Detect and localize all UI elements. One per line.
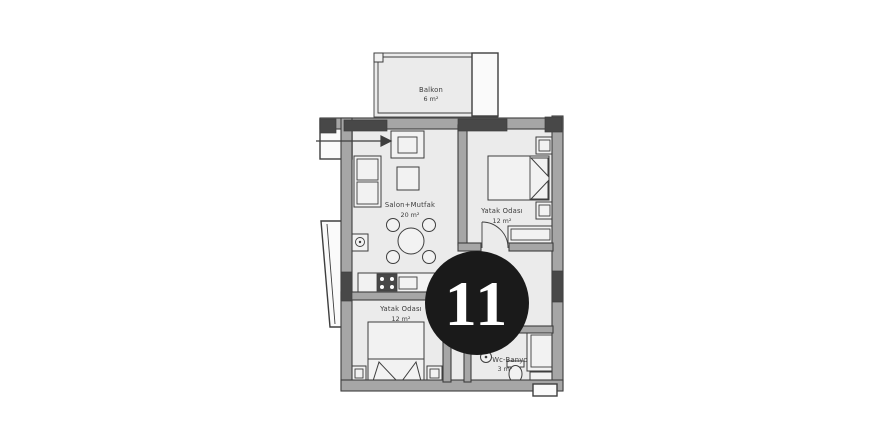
- sofa: [354, 156, 381, 207]
- wall-living-bedroom: [458, 125, 467, 245]
- wall-bottom: [341, 380, 563, 391]
- stove-burner: [390, 285, 394, 289]
- wall-left: [341, 118, 352, 390]
- bathroom-label: Wc-Banyo: [492, 356, 528, 364]
- unit-number: 11: [445, 268, 509, 339]
- nightstand: [427, 366, 442, 381]
- window-top-left: [344, 120, 387, 131]
- bathroom-area-label: 3 m²: [498, 365, 513, 373]
- bedroom-lower-label: Yatak Odası: [379, 305, 422, 313]
- window-top-right: [458, 119, 507, 131]
- balcony-open-section: [472, 53, 498, 116]
- stove: [377, 274, 397, 291]
- dining-table: [398, 228, 424, 254]
- stove-burner: [380, 277, 384, 281]
- dining-chair: [423, 251, 436, 264]
- balcony-label: Balkon: [419, 86, 443, 94]
- floor-plan-image: Balkon 6 m² Salon+Mutfak 20 m²: [0, 0, 890, 440]
- dining-chair: [423, 219, 436, 232]
- balcony: Balkon 6 m²: [374, 53, 498, 117]
- kitchen-sink-drain: [359, 241, 361, 243]
- balcony-corner-post: [374, 53, 383, 62]
- column-right: [552, 271, 563, 302]
- column-left: [341, 272, 352, 301]
- stove-burner: [390, 277, 394, 281]
- coffee-table: [397, 167, 419, 190]
- wall-right: [552, 116, 563, 390]
- dining-chair: [387, 219, 400, 232]
- floor-plan-canvas: Balkon 6 m² Salon+Mutfak 20 m²: [0, 0, 890, 440]
- bathroom-sink-drain: [485, 356, 488, 359]
- nightstand: [352, 366, 366, 381]
- wall-bedroom-bottom-left: [458, 243, 481, 251]
- dining-chair: [387, 251, 400, 264]
- balcony-area-label: 6 m²: [424, 95, 439, 103]
- entry-closet: [391, 131, 424, 158]
- column-top-right: [545, 117, 562, 132]
- unit-number-badge: 11: [425, 251, 529, 355]
- stove-burner: [380, 285, 384, 289]
- utility-shaft: [533, 384, 557, 396]
- bedroom-lower-area-label: 12 m²: [392, 315, 411, 323]
- wall-bedroom-bottom-right: [509, 243, 553, 251]
- column-top-left: [320, 119, 336, 133]
- bedroom-right-area-label: 12 m²: [493, 217, 512, 225]
- living-room-label: Salon+Mutfak: [385, 201, 435, 209]
- bedroom-right-label: Yatak Odası: [480, 207, 523, 215]
- living-room-area-label: 20 m²: [401, 211, 420, 219]
